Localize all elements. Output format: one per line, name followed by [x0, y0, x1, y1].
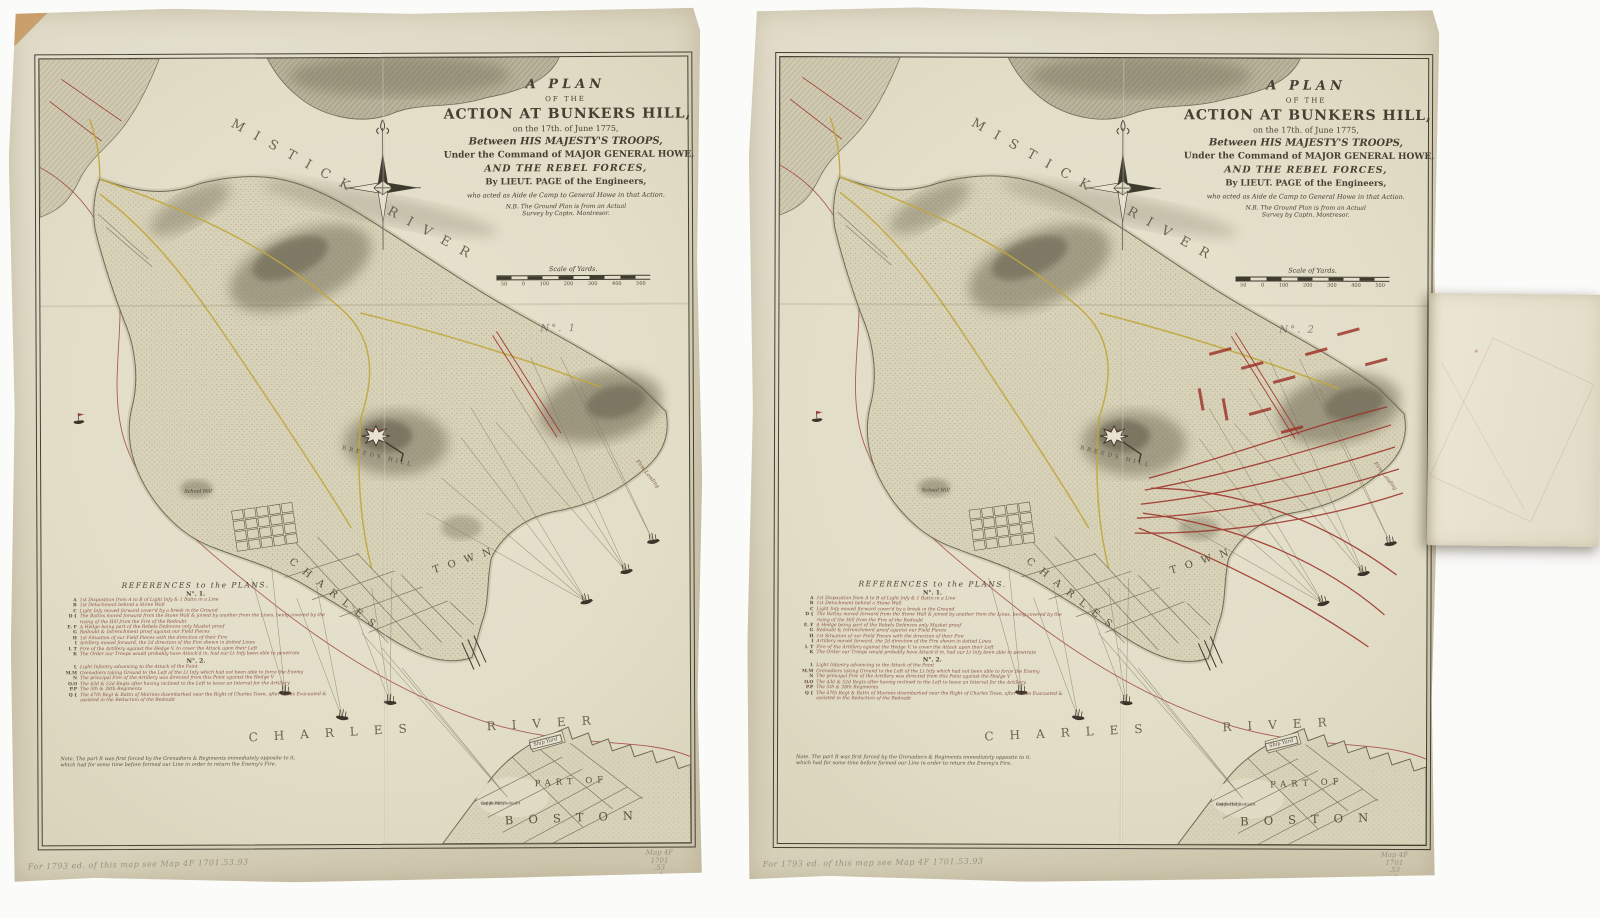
legend-text: The 47th Regt & Battn of Marines disemba… — [816, 691, 1066, 703]
shelfmark-line: .3 — [646, 872, 673, 880]
legend-note-line: which had for some time before formed ou… — [60, 761, 360, 768]
legend-text: The 47th Regt & Battn of Marines disemba… — [80, 692, 330, 704]
legend-text: The Battns moved forward from the Stone … — [816, 612, 1066, 624]
legend-key: D { — [60, 614, 80, 625]
legend-key: K — [796, 650, 816, 655]
legend-row: D {The Battns moved forward from the Sto… — [60, 613, 366, 625]
label-boston: BOSTON — [1240, 810, 1384, 829]
map-text-overlay-2: A PLAN OF THE ACTION AT BUNKERS HILL, on… — [778, 57, 1428, 845]
label-charles-river: RIVER — [486, 713, 607, 734]
scale-ticks: 50 0 100 200 300 400 500 — [488, 281, 658, 288]
title-line: ACTION AT BUNKERS HILL, — [1184, 107, 1428, 124]
legend-note: Note. The part R was first forced by the… — [796, 754, 1096, 767]
label-copps-line: and Battery — [1216, 802, 1240, 807]
label-school-hill: School Hill — [922, 487, 950, 493]
label-ship-yard: Ship Yard — [1265, 736, 1299, 752]
title-line: who acted as Aide de Camp to General How… — [1184, 192, 1428, 201]
label-mistick-river: MISTICK — [228, 117, 362, 200]
label-charles-river: RIVER — [1222, 714, 1343, 734]
legend-key: Q { — [796, 691, 816, 702]
label-ship-yard: Ship Yard — [529, 734, 562, 750]
label-charlestown: TOWN — [1169, 545, 1239, 577]
label-part-of: PART OF — [534, 775, 608, 789]
flap-ghost-marks — [1475, 350, 1478, 353]
label-part-of: PART OF — [1270, 777, 1344, 791]
title-cartouche: A PLAN OF THE ACTION AT BUNKERS HILL, on… — [443, 77, 688, 218]
map-sheet-plan-2: A PLAN OF THE ACTION AT BUNKERS HILL, on… — [747, 7, 1440, 883]
title-line: A PLAN — [1184, 78, 1428, 94]
shelfmark-line: .3 — [1381, 874, 1408, 882]
legend-text: The Order our Troops would probably have… — [816, 650, 1036, 656]
legend-row: Q {The 47th Regt & Battn of Marines dise… — [60, 691, 366, 703]
title-line: OF THE — [443, 95, 687, 104]
legend-key: Q { — [60, 693, 80, 704]
pencil-annotation: For 1793 ed. of this map see Map 4F 1701… — [28, 858, 249, 872]
legend-note: Note. The part R was first forced by the… — [60, 755, 360, 768]
title-line: ACTION AT BUNKERS HILL, — [444, 106, 688, 123]
references-legend: REFERENCES to the PLANS. N°. 1. A1st Dis… — [796, 579, 1102, 702]
legend-heading: REFERENCES to the PLANS. — [60, 580, 332, 590]
label-charlestown: TOWN — [432, 544, 502, 576]
plan-number: N°. 2 — [1279, 325, 1316, 336]
photograph-background: A PLAN OF THE ACTION AT BUNKERS HILL, on… — [0, 0, 1600, 918]
title-line: Between HIS MAJESTY'S TROOPS, — [444, 136, 688, 148]
label-first-landing: First Landing — [1372, 461, 1398, 492]
title-line: on the 17th. of June 1775, — [1184, 125, 1428, 135]
pencil-annotation: For 1793 ed. of this map see Map 4F 1701… — [763, 857, 984, 869]
paper-flap-overlay — [1427, 293, 1600, 547]
title-line: AND THE REBEL FORCES, — [444, 163, 688, 175]
references-legend: REFERENCES to the PLANS. N°. 1. A1st Dis… — [60, 580, 367, 704]
map-text-overlay-1: A PLAN OF THE ACTION AT BUNKERS HILL, on… — [39, 57, 690, 846]
title-line: OF THE — [1184, 96, 1428, 105]
scale-bar — [496, 275, 650, 281]
title-line: Between HIS MAJESTY'S TROOPS, — [1184, 137, 1428, 149]
legend-text: The Battns moved forward from the Stone … — [80, 613, 330, 625]
scale-label: Scale of Yards. — [1228, 266, 1398, 275]
legend-row: KThe Order our Troops would probably hav… — [796, 650, 1102, 656]
label-charles-river: CHARLES — [248, 721, 423, 745]
label-mistick-river: MISTICK — [969, 116, 1103, 200]
plan-number: N°. 1 — [540, 323, 577, 334]
label-first-landing: First Landing — [634, 459, 660, 490]
title-line: who acted as Aide de Camp to General How… — [444, 191, 688, 200]
title-line: By LIEUT. PAGE of the Engineers, — [1184, 178, 1428, 189]
scale-bar-block: Scale of Yards. 50 0 100 200 300 400 500 — [488, 265, 658, 288]
title-line: Under the Command of MAJOR GENERAL HOWE, — [1184, 151, 1428, 162]
title-line: Survey by Captn. Montresor. — [1184, 211, 1428, 219]
legend-row: Q {The 47th Regt & Battn of Marines dise… — [796, 691, 1102, 703]
scale-bar — [1236, 276, 1390, 281]
label-breeds-hill: BREEDS HILL — [341, 445, 414, 468]
scale-bar-block: Scale of Yards. 50 0 100 200 300 400 500 — [1227, 266, 1397, 289]
legend-text: The Order our Troops would probably have… — [80, 651, 300, 657]
shelfmark-annotation: Map 4F 1701 .53 .3 — [1381, 852, 1408, 882]
legend-note-line: which had for some time before formed ou… — [796, 760, 1096, 767]
fold-crease-horizontal — [779, 303, 1427, 307]
scale-label: Scale of Yards. — [488, 265, 658, 274]
legend-key: D { — [796, 612, 816, 623]
title-line: on the 17th. of June 1775, — [444, 124, 688, 134]
title-line: Survey by Captn. Montresor. — [444, 210, 688, 218]
title-line: AND THE REBEL FORCES, — [1184, 164, 1428, 176]
title-cartouche: A PLAN OF THE ACTION AT BUNKERS HILL, on… — [1184, 78, 1428, 219]
map-sheet-plan-1: A PLAN OF THE ACTION AT BUNKERS HILL, on… — [8, 6, 704, 883]
title-line: By LIEUT. PAGE of the Engineers, — [444, 177, 688, 188]
label-boston: BOSTON — [505, 808, 649, 828]
corner-fold — [4, 5, 56, 45]
label-copps-line: and Battery — [481, 801, 505, 806]
label-charles-river: CHARLES — [984, 721, 1159, 744]
legend-key: K — [60, 652, 80, 657]
map-plate-1: A PLAN OF THE ACTION AT BUNKERS HILL, on… — [38, 56, 691, 847]
map-plate-2: A PLAN OF THE ACTION AT BUNKERS HILL, on… — [777, 56, 1429, 846]
shelfmark-annotation: Map 4F 1701 .53 .3 — [646, 850, 673, 880]
legend-heading: REFERENCES to the PLANS. — [797, 579, 1069, 589]
label-school-hill: School Hill — [184, 489, 212, 495]
scale-ticks: 50 0 100 200 300 400 500 — [1227, 282, 1397, 289]
fold-crease-horizontal — [40, 303, 688, 308]
label-breeds-hill: BREEDS HILL — [1079, 445, 1152, 469]
title-line: Under the Command of MAJOR GENERAL HOWE, — [444, 150, 688, 161]
title-line: A PLAN — [443, 77, 687, 93]
